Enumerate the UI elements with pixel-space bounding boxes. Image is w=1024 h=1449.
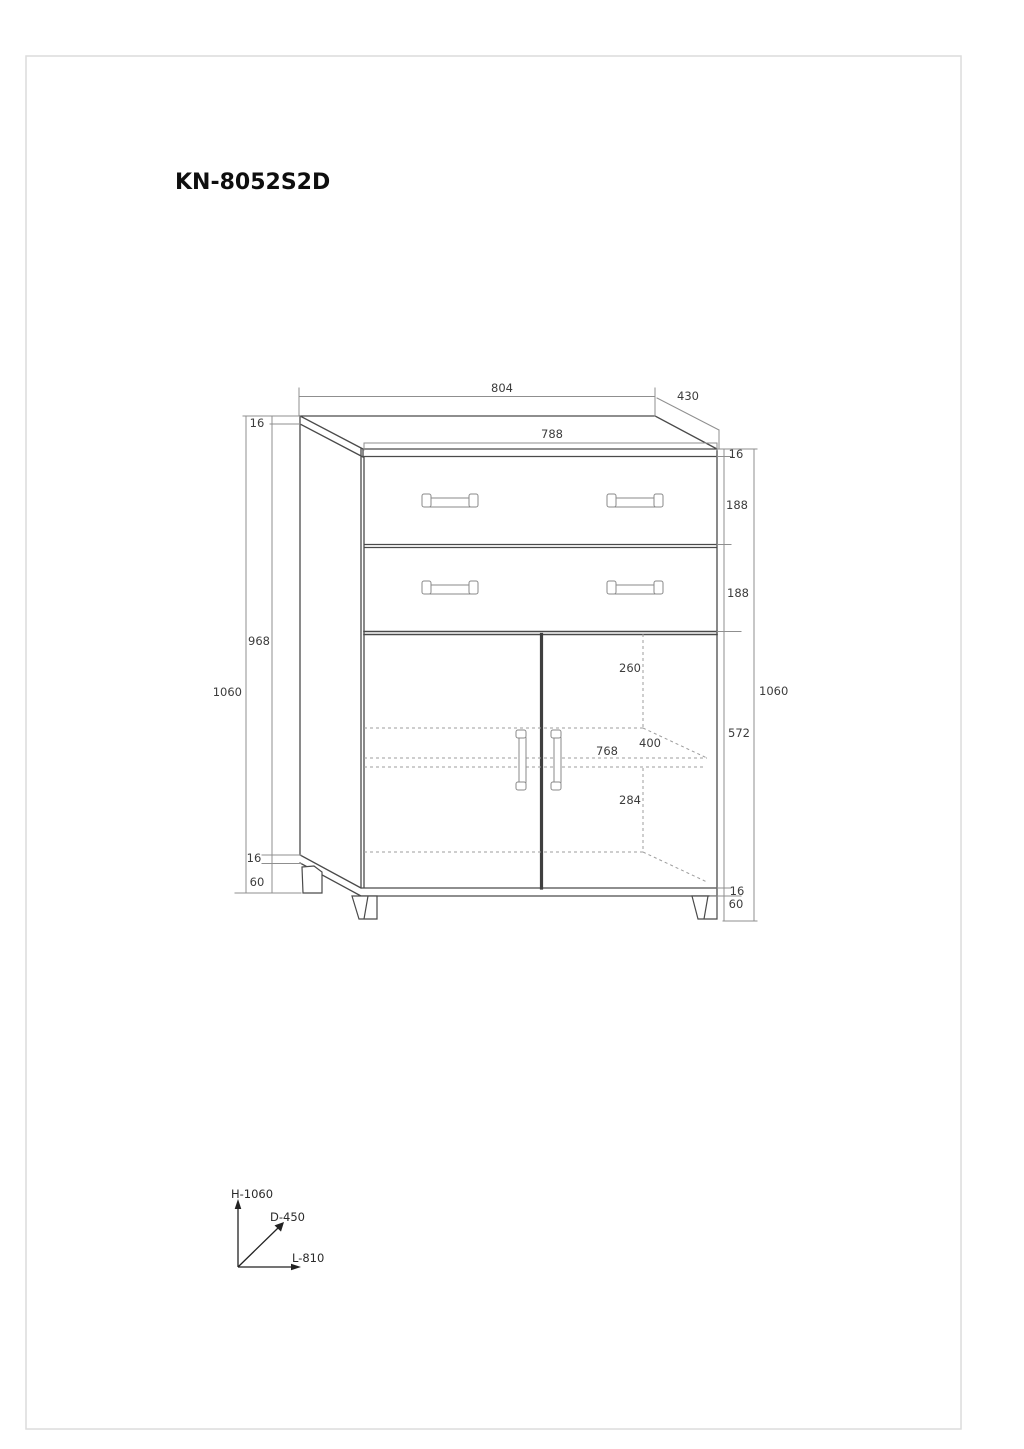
dim-shelf-offset-top: 260 xyxy=(619,661,641,675)
dim-lines-top xyxy=(243,388,719,450)
drawer1-handle-left xyxy=(422,494,478,507)
drawer2-handle-right xyxy=(607,581,663,594)
leg-back-left xyxy=(302,866,322,893)
length-axis-label: L-810 xyxy=(292,1251,324,1265)
dim-top-panel-width: 804 xyxy=(491,381,513,395)
page-border xyxy=(26,56,961,1429)
height-axis-label: H-1060 xyxy=(231,1187,273,1201)
depth-axis-line xyxy=(238,1228,278,1267)
dim-drawer2-height: 188 xyxy=(727,586,749,600)
drawing-sheet: KN-8052S2D 804 430 xyxy=(0,0,1024,1449)
dim-shelf-offset-bottom: 284 xyxy=(619,793,641,807)
door-handle-left xyxy=(516,730,526,790)
dim-bottom-thickness-left: 16 xyxy=(247,851,262,865)
dim-overall-height-right: 1060 xyxy=(759,684,788,698)
dim-lines-left xyxy=(235,416,301,893)
cabinet-technical-drawing: KN-8052S2D 804 430 xyxy=(0,0,1024,1449)
dim-interior-depth: 400 xyxy=(639,736,661,750)
dim-overall-height-left: 1060 xyxy=(213,685,242,699)
dim-carcass-width: 788 xyxy=(541,427,563,441)
dim-leg-height-right: 60 xyxy=(729,897,744,911)
dim-drawer1-height: 188 xyxy=(726,498,748,512)
dim-shelf-width: 768 xyxy=(596,744,618,758)
depth-axis-label: D-450 xyxy=(270,1210,305,1224)
drawing-title: KN-8052S2D xyxy=(175,170,330,195)
hidden-shelf-lines xyxy=(364,634,707,882)
axis-legend: H-1060 D-450 L-810 xyxy=(231,1187,324,1270)
dimension-labels: 804 430 788 16 968 1060 16 60 16 188 188… xyxy=(213,381,789,911)
dim-door-height: 572 xyxy=(728,726,750,740)
dim-top-panel-depth: 430 xyxy=(677,389,699,403)
dim-top-thickness-left: 16 xyxy=(250,416,265,430)
cabinet-body xyxy=(300,416,717,896)
door-handle-right xyxy=(551,730,561,790)
drawer1-handle-right xyxy=(607,494,663,507)
dim-top-thickness-right: 16 xyxy=(729,447,744,461)
dim-side-panel-height: 968 xyxy=(248,634,270,648)
dimension-lines xyxy=(235,388,757,921)
dim-bottom-thickness-right: 16 xyxy=(730,884,745,898)
cabinet-outline xyxy=(300,416,717,896)
drawer2-handle-left xyxy=(422,581,478,594)
dim-leg-height-left: 60 xyxy=(250,875,265,889)
